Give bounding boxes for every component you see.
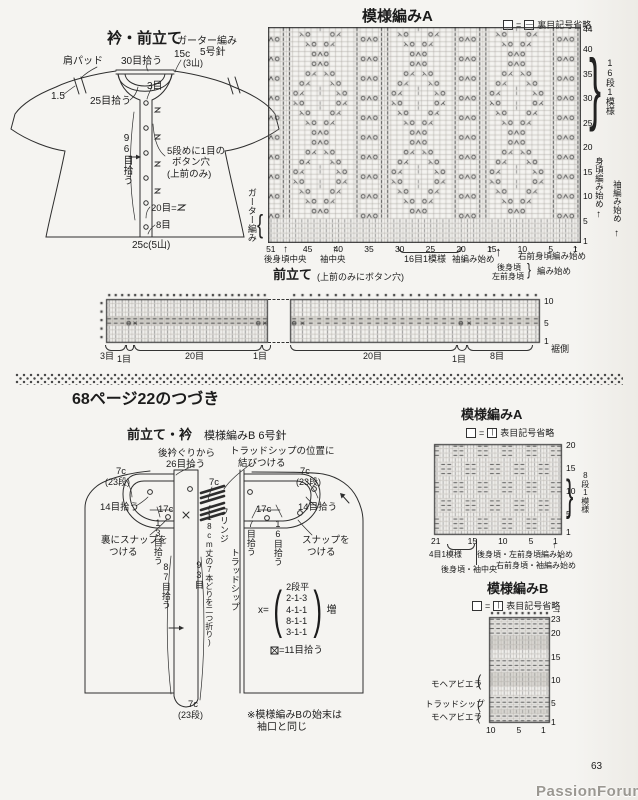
box-x-icon xyxy=(270,646,279,655)
x-equals: x= xyxy=(258,605,269,616)
label-pickup-16: 16目拾う xyxy=(272,519,282,566)
tick-label: 10 xyxy=(551,676,560,685)
tick-label: 10 xyxy=(566,487,575,496)
label-buttonhole-1: 5段めに1目の xyxy=(167,147,225,157)
pattern-a-small-chart-canvas xyxy=(433,443,563,536)
tick-label: 1 xyxy=(566,528,571,537)
label-17c: 17c xyxy=(158,505,173,515)
label-7c: 7c xyxy=(209,478,219,488)
tick-label: 5 xyxy=(548,245,553,254)
bottom-sub2: 模様編みB 6号針 xyxy=(204,430,287,442)
tick-label: 1 xyxy=(573,245,578,254)
bottom-sub1: 前立て・衿 xyxy=(127,428,192,442)
tick-label: 1 xyxy=(541,726,546,735)
tick-label: 30 xyxy=(395,245,404,254)
tick-label: 15 xyxy=(468,537,477,546)
placket-strip-left-canvas xyxy=(99,292,269,344)
label-yarn-top: モヘアビエラ xyxy=(431,680,482,689)
label-7c: 7c xyxy=(300,467,310,477)
label-trad2: 結びつける xyxy=(238,459,286,469)
label-body-start: 身頃編み始め xyxy=(594,157,603,208)
x-line: 2段平 xyxy=(286,582,309,593)
label-group: 3目 xyxy=(100,352,114,362)
label-group: 8目 xyxy=(490,352,504,362)
label-mark-eq: =11目拾う xyxy=(270,646,323,656)
label-group: 1目 xyxy=(117,355,131,365)
label-group: 20目 xyxy=(185,352,204,362)
x-increase: 増 xyxy=(327,605,337,616)
label-knit-start: 編み始め xyxy=(537,267,571,276)
tick-label: 10 xyxy=(486,726,495,735)
x-line: 8-1-1 xyxy=(286,616,309,627)
label-sleeve-center: 袖中央 xyxy=(320,255,346,264)
tick-label: 51 xyxy=(266,245,275,254)
yarn-brace: ( xyxy=(477,697,481,711)
chart-a-title: 模様編みA xyxy=(461,408,522,422)
magazine-page: 衿・前立て ガーター編み 5号針 肩パッド 30目拾う 15c (3山) 1.5… xyxy=(0,0,638,800)
label-fringe: フリンジ xyxy=(218,507,228,543)
up-arrow: ↑ xyxy=(614,228,619,239)
buttons xyxy=(144,101,148,229)
label-trad1: トラッドシップの位置に xyxy=(230,447,335,457)
tick-label: 15 xyxy=(487,245,496,254)
pattern-a-large-chart-canvas xyxy=(268,27,581,243)
tick-label: 44 xyxy=(583,25,592,34)
blank-square-icon xyxy=(472,601,482,611)
pattern-b-chart-canvas xyxy=(488,610,551,725)
label-garter-side: ガーター編み xyxy=(246,188,256,242)
tick-label: 15 xyxy=(583,168,592,177)
label-7c-rows: (23段) xyxy=(178,711,203,721)
label-group: 1目 xyxy=(452,355,466,365)
tick-label: 5 xyxy=(551,699,556,708)
tick-label: 21 xyxy=(431,537,440,546)
label-needle: 5号針 xyxy=(200,47,226,58)
x-line: 2-1-3 xyxy=(286,593,309,604)
tick-label: 10 xyxy=(544,297,553,306)
label-center: 後身頃・袖中央 xyxy=(441,566,497,575)
continuation-dashes xyxy=(268,342,289,343)
front-placket xyxy=(140,100,152,237)
tick-label: 45 xyxy=(303,245,312,254)
label-snap-back1: 裏にスナップを xyxy=(101,536,168,546)
buttonhole-marks xyxy=(155,108,160,193)
start-brace: } xyxy=(527,261,531,278)
watermark: PassionForum.ru xyxy=(536,783,638,800)
placket-subtitle: (上前のみにボタン穴) xyxy=(317,273,404,283)
label-pickup-14: 14目拾う xyxy=(298,503,337,513)
label-start2: 右前身頃・袖編み始め xyxy=(496,562,576,571)
tick-label: 10 xyxy=(583,192,592,201)
label-15c-sub: (3山) xyxy=(183,59,203,69)
label-note1: ※模様編みBの始末は xyxy=(247,710,342,721)
label-group: 1目 xyxy=(253,352,267,362)
label-7c: 7c xyxy=(188,700,198,710)
label-7c-rows: (23段) xyxy=(105,478,130,488)
continuation-dashes xyxy=(268,299,289,300)
label-pickup-96: 96目拾う xyxy=(121,133,132,185)
row-repeat-brace: } xyxy=(589,48,601,128)
tick-label: 35 xyxy=(364,245,373,254)
tick-label: 5 xyxy=(517,726,522,735)
label-pickup-25: 25目拾う xyxy=(90,96,131,107)
label-93st: 93目 xyxy=(193,560,203,589)
equals-sign: = xyxy=(485,601,490,611)
tick-label: 5 xyxy=(544,319,549,328)
equals-sign: = xyxy=(479,428,484,438)
label-shoulder-pad: 肩パッド xyxy=(63,56,103,67)
label-garter: ガーター編み xyxy=(177,36,237,47)
tick-label: 15 xyxy=(551,653,560,662)
page-number: 63 xyxy=(591,761,602,772)
label-note2: 袖口と同じ xyxy=(257,722,307,733)
label-tradship: トラッドシップ xyxy=(229,548,239,611)
label-7c-rows: (23段) xyxy=(296,478,321,488)
tick-label: 1 xyxy=(551,718,556,727)
label-yarn-mid: トラッドシップ xyxy=(425,700,485,709)
collar-band-top xyxy=(116,70,174,74)
label-back-center: 後身頃中央 xyxy=(264,255,307,264)
label-20st-eq: 20目= xyxy=(151,204,187,214)
tick-label: 1 xyxy=(553,537,558,546)
group-brace xyxy=(126,345,134,351)
close-paren: ) xyxy=(314,587,323,634)
collar-u xyxy=(118,74,172,91)
label-sleeve-start-right: 袖編み始め xyxy=(612,180,621,223)
label-3st: 3目 xyxy=(147,81,163,92)
tick-label: 40 xyxy=(583,45,592,54)
label-hem-side: 裾側 xyxy=(551,345,569,355)
tick-label: 20 xyxy=(583,143,592,152)
tick-label: 20 xyxy=(456,245,465,254)
increase-formula: x= ( 2段平 2-1-3 4-1-1 8-1-1 3-1-1 ) 増 xyxy=(258,582,337,638)
tick-label: 1 xyxy=(583,237,588,246)
label-fringe-note: (18cm丈の7本どりを二つ折り) xyxy=(204,504,213,647)
tick-label: 15 xyxy=(566,464,575,473)
label-sleeve-start-bottom: 袖編み始め xyxy=(452,255,495,264)
label-group: 20目 xyxy=(363,352,382,362)
tick-label: 25 xyxy=(426,245,435,254)
chart-a-legend: = | 表目記号省略 xyxy=(466,426,554,439)
top-schematic-title: 衿・前立て xyxy=(107,31,182,48)
tick-label: 40 xyxy=(334,245,343,254)
tick-label: 10 xyxy=(498,537,507,546)
label-col-repeat: 16目1模様 xyxy=(404,255,446,265)
top-chart-title: 模様編みA xyxy=(362,9,433,26)
buttonhole-mark-icon xyxy=(177,204,187,212)
label-pickup-30: 30目拾う xyxy=(121,56,162,67)
label-pickup-14: 14目拾う xyxy=(100,503,139,513)
label-row-repeat: 8段1模様 xyxy=(580,471,589,513)
tick-label: 20 xyxy=(566,441,575,450)
label-col-repeat: 4目1模様 xyxy=(429,551,462,560)
label-25c: 25c(5山) xyxy=(132,240,170,251)
tick-label: 23 xyxy=(551,615,560,624)
label-buttonhole-3: (上前のみ) xyxy=(167,170,211,180)
label-pickup-7: 7目拾う xyxy=(245,519,255,556)
chart-b-title: 模様編みB xyxy=(487,582,548,596)
label-snap-back2: つける xyxy=(109,548,138,558)
tick-label: 25 xyxy=(583,119,592,128)
garter-brace: { xyxy=(257,211,263,237)
knit-symbol-icon: | xyxy=(493,601,503,611)
knit-symbol-icon: | xyxy=(487,428,497,438)
group-brace xyxy=(457,345,467,351)
label-row-repeat: 16段1模様 xyxy=(604,58,614,115)
tick-label: 30 xyxy=(583,94,592,103)
label-snap1: スナップを xyxy=(302,536,350,546)
legend-text: 表目記号省略 xyxy=(500,426,554,439)
tick-label: 10 xyxy=(518,245,527,254)
blank-square-icon xyxy=(466,428,476,438)
yarn-brace: ( xyxy=(477,711,480,723)
label-neck1: 後衿ぐりから xyxy=(158,449,215,459)
section-divider xyxy=(15,373,623,385)
placket-strip-right-canvas xyxy=(289,292,541,344)
open-paren: ( xyxy=(273,587,282,634)
tick-label: 35 xyxy=(583,70,592,79)
tick-label: 5 xyxy=(566,510,571,519)
tick-label: 20 xyxy=(551,629,560,638)
tick-label: 5 xyxy=(529,537,534,546)
tick-label: 1 xyxy=(544,337,549,346)
placket-title: 前立て xyxy=(273,268,312,282)
label-8st: 8目 xyxy=(156,221,171,231)
label-7c: 7c xyxy=(116,467,126,477)
label-buttonhole-2: ボタン穴 xyxy=(172,158,210,168)
label-snap2: つける xyxy=(307,548,336,558)
x-line: 3-1-1 xyxy=(286,627,309,638)
right-placket-edge xyxy=(240,470,244,693)
label-17c: 17c xyxy=(256,505,271,515)
x-mark xyxy=(183,512,189,518)
up-arrow: ↑ xyxy=(558,553,563,563)
label-pickup-87: 87目拾う xyxy=(160,562,170,609)
label-left-front: 左前身頃 xyxy=(492,273,524,282)
label-yarn-bottom: モヘアビエラ xyxy=(431,713,482,722)
top-garment-schematic xyxy=(11,60,279,237)
continuation-heading: 68ページ22のつづき xyxy=(72,391,219,409)
left-collar xyxy=(123,474,174,528)
up-arrow: ↑ xyxy=(596,209,601,220)
yarn-brace: ( xyxy=(477,674,481,690)
x-line: 4-1-1 xyxy=(286,605,309,616)
label-neck2: 26目拾う xyxy=(166,460,205,470)
label-1-5: 1.5 xyxy=(51,91,65,102)
tick-label: 5 xyxy=(583,217,588,226)
